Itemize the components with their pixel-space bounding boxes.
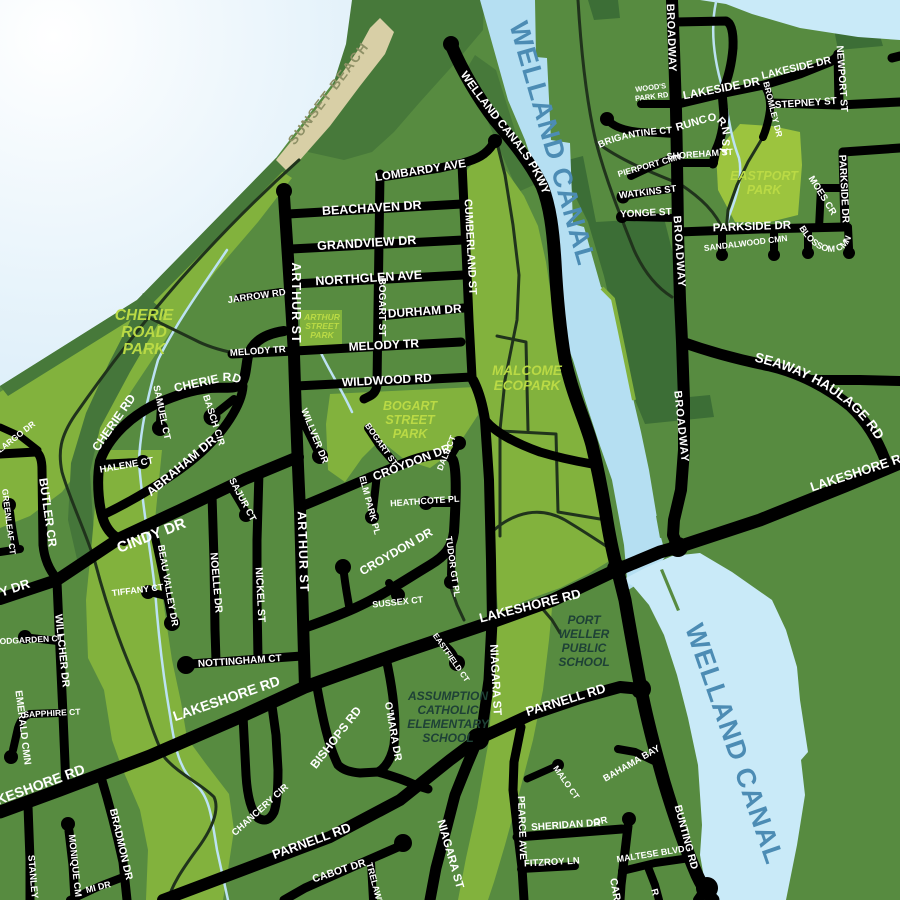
svg-text:MALCOME: MALCOME — [492, 363, 563, 378]
svg-text:WELLER: WELLER — [559, 627, 610, 641]
svg-text:EASTPORT: EASTPORT — [730, 169, 799, 183]
svg-text:PUBLIC: PUBLIC — [562, 641, 607, 655]
svg-text:ELEMENTARY: ELEMENTARY — [407, 717, 490, 731]
svg-text:PEARCE AVE: PEARCE AVE — [515, 796, 528, 861]
svg-text:STREET: STREET — [385, 413, 436, 427]
svg-text:CHERIE: CHERIE — [115, 307, 174, 324]
svg-text:ARTHUR ST: ARTHUR ST — [295, 511, 312, 593]
svg-text:PARK: PARK — [393, 427, 428, 441]
svg-text:SCHOOL: SCHOOL — [558, 655, 609, 669]
svg-text:PARK: PARK — [747, 183, 782, 197]
svg-text:BROADWAY: BROADWAY — [664, 4, 678, 73]
svg-text:ECOPARK: ECOPARK — [494, 378, 562, 393]
svg-text:SCHOOL: SCHOOL — [422, 731, 473, 745]
svg-text:BOGART ST: BOGART ST — [376, 278, 387, 337]
svg-text:ARTHUR ST: ARTHUR ST — [289, 262, 303, 343]
svg-text:ROAD: ROAD — [121, 324, 167, 341]
svg-text:CATHOLIC: CATHOLIC — [417, 703, 478, 717]
svg-text:ASSUMPTION: ASSUMPTION — [407, 689, 488, 703]
svg-text:PARK: PARK — [310, 330, 334, 340]
svg-text:PARK: PARK — [123, 341, 168, 358]
svg-text:BOGART: BOGART — [383, 399, 438, 413]
svg-text:PORT: PORT — [567, 613, 602, 627]
